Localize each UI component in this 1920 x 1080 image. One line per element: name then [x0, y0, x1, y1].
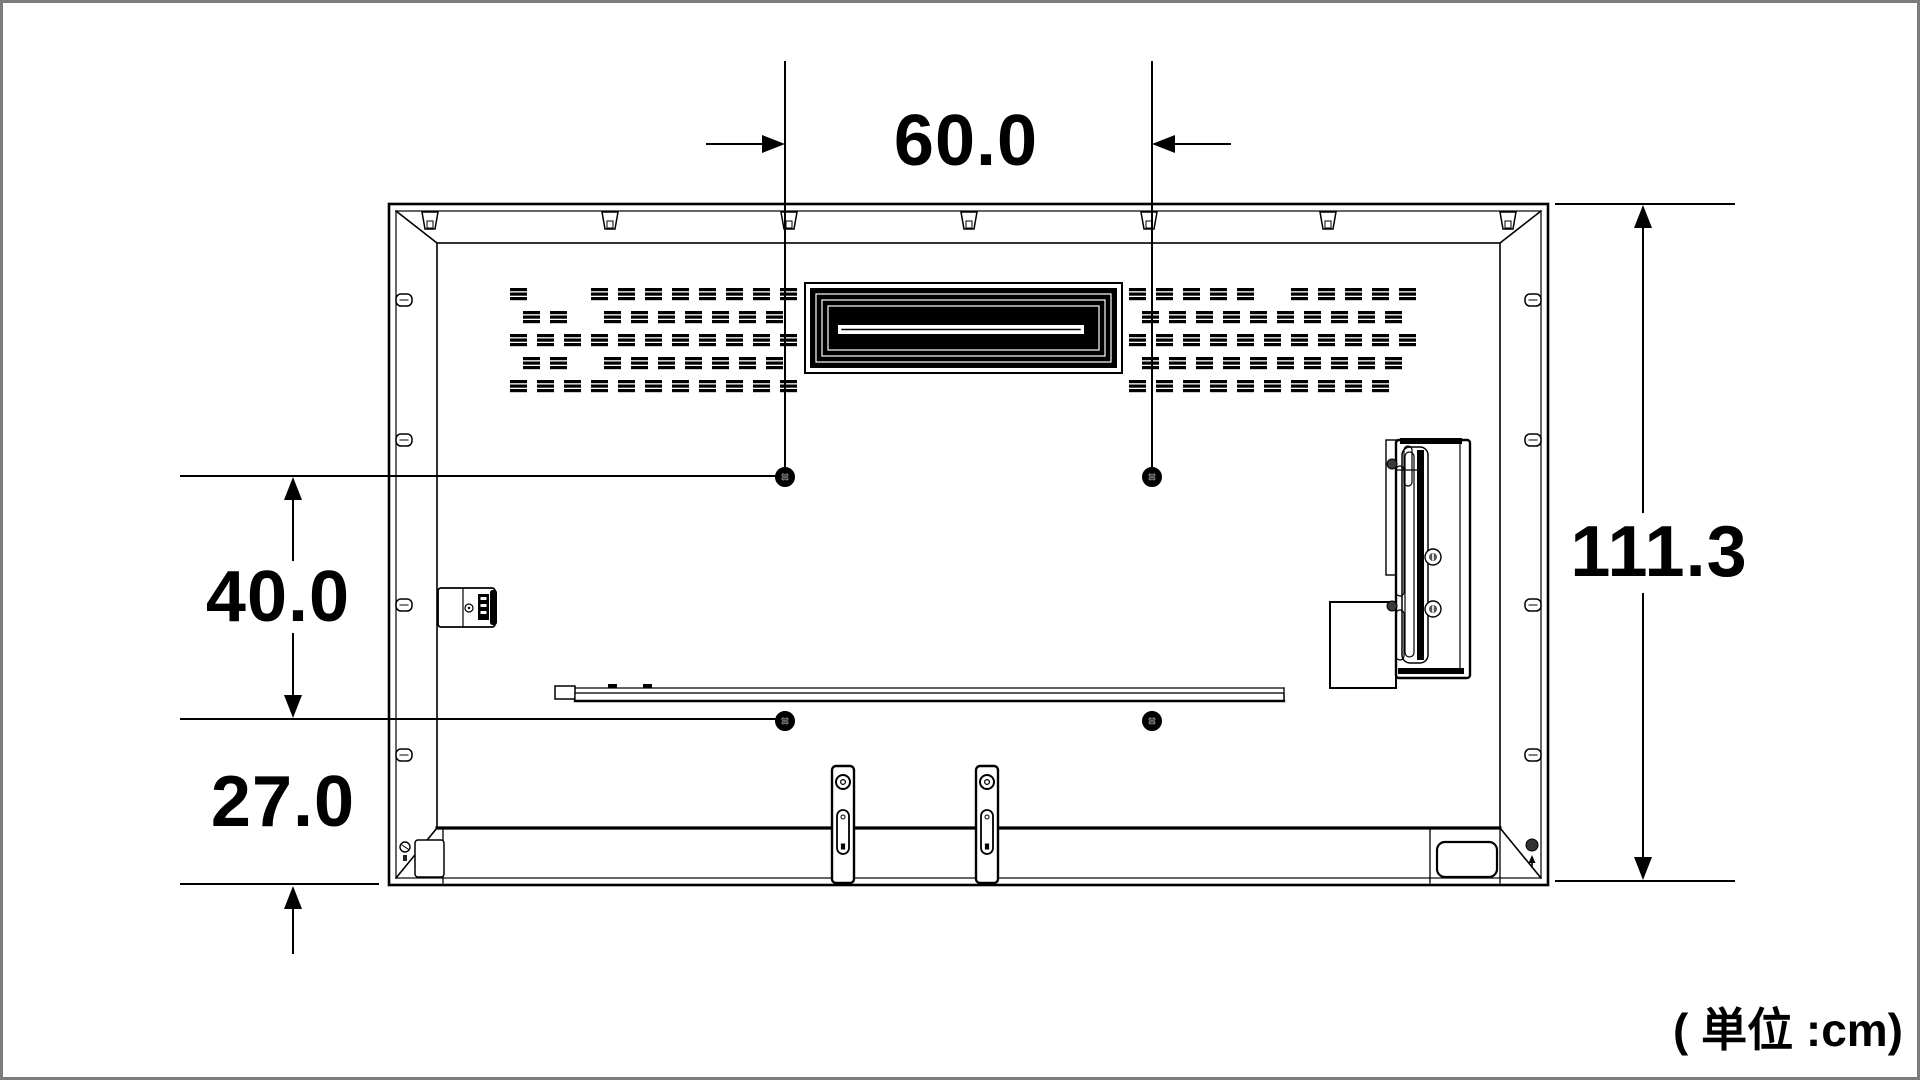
corner-screw-icon — [1526, 839, 1538, 851]
arrowhead-up-icon — [284, 477, 302, 500]
vesa-screw-icon — [776, 712, 795, 731]
arrowhead-up-icon — [1634, 205, 1652, 228]
vesa-screw-icon — [776, 468, 795, 487]
edge-screw-icon — [1387, 459, 1397, 469]
terminal-screw-icon — [1425, 549, 1441, 565]
arrowhead-down-icon — [284, 695, 302, 718]
dim-label-set-height: 111.3 — [1570, 511, 1747, 593]
stand-bracket — [976, 766, 998, 883]
arrowhead-right-icon — [762, 135, 785, 153]
corner-plate — [415, 840, 444, 877]
handle-recess — [805, 283, 1122, 373]
arrowhead-up-icon — [284, 886, 302, 909]
side-connector-box — [438, 588, 497, 627]
corner-plate — [1437, 842, 1497, 877]
arrowhead-down-icon — [1634, 857, 1652, 880]
unit-note: ( 単位 :cm) — [1673, 994, 1903, 1060]
dim-label-bottom-offset: 27.0 — [211, 761, 355, 843]
terminal-slot-dark — [1417, 450, 1424, 660]
terminal-side-box — [1330, 602, 1396, 688]
dim-label-mount-width: 60.0 — [894, 100, 1038, 182]
terminal-screw-icon — [1425, 601, 1441, 617]
arrowhead-left-icon — [1152, 135, 1175, 153]
connector-cap — [490, 590, 497, 625]
stand-bracket — [832, 766, 854, 883]
edge-screw-icon — [1387, 601, 1397, 611]
dim-label-mount-height: 40.0 — [206, 556, 350, 638]
vesa-screw-icon — [1143, 468, 1162, 487]
rail-left-cap — [555, 686, 575, 699]
diagram-canvas: 60.0 40.0 27.0 111.3 ( 単位 :cm) — [0, 0, 1920, 1080]
vesa-screw-icon — [1143, 712, 1162, 731]
